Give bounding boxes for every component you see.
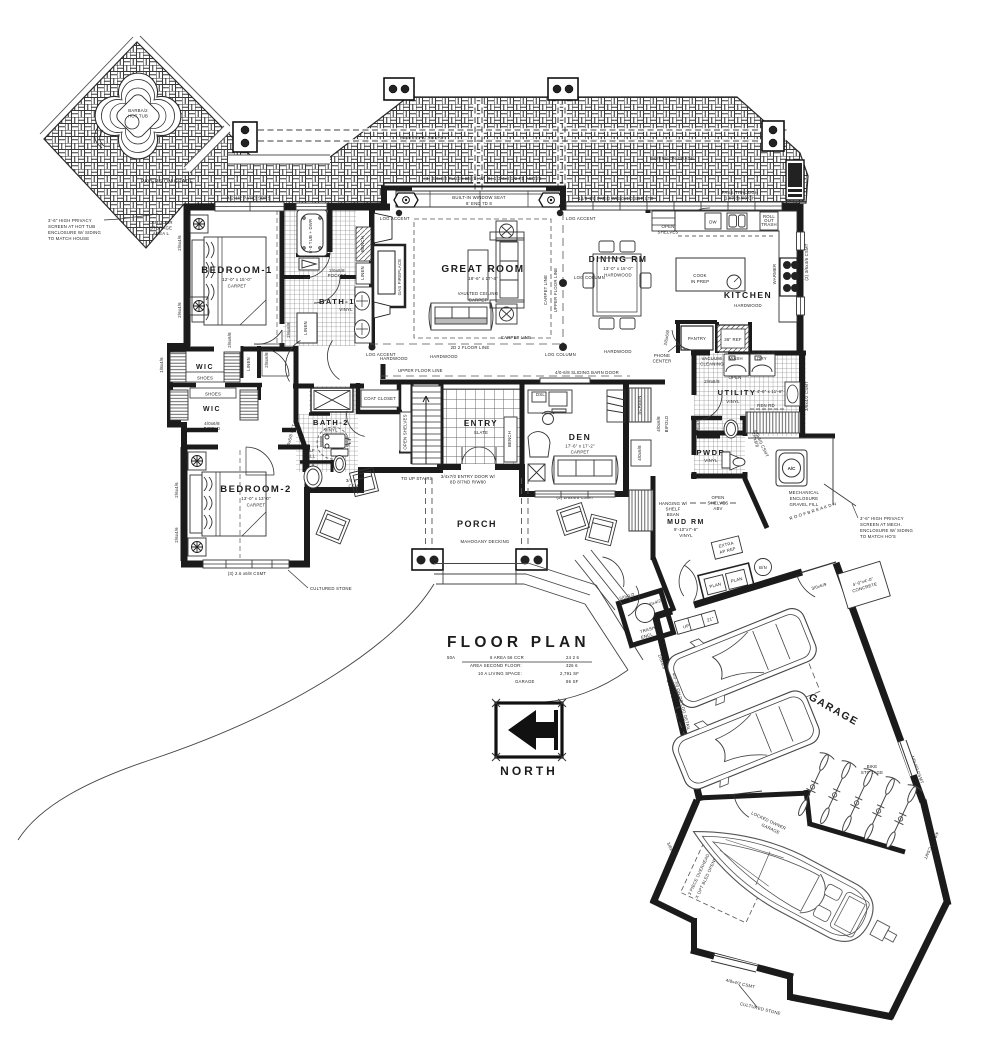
svg-text:326 6: 326 6: [566, 663, 578, 668]
svg-text:BIKE: BIKE: [867, 764, 878, 769]
svg-text:WASH: WASH: [729, 356, 743, 361]
svg-text:LOG COLUMN: LOG COLUMN: [545, 352, 576, 357]
svg-text:ENTRY: ENTRY: [464, 419, 498, 428]
svg-text:SHOES: SHOES: [197, 376, 213, 381]
svg-text:36" REF: 36" REF: [724, 337, 742, 342]
svg-text:LOG ACCENT: LOG ACCENT: [380, 216, 410, 221]
svg-text:TO UP STAIRS: TO UP STAIRS: [401, 476, 433, 481]
svg-text:4/0x6/8: 4/0x6/8: [656, 416, 661, 432]
svg-text:4'-6" x 11'-6": 4'-6" x 11'-6": [757, 389, 784, 394]
svg-text:VINYL: VINYL: [704, 458, 718, 463]
svg-text:24 2 6: 24 2 6: [566, 655, 580, 660]
svg-text:SHELF: SHELF: [666, 507, 681, 512]
svg-text:WALL: WALL: [303, 454, 316, 459]
svg-text:ENCLOSURE W/ SIDING: ENCLOSURE W/ SIDING: [48, 230, 101, 235]
svg-text:10 A LIVING SPACE:: 10 A LIVING SPACE:: [478, 671, 522, 676]
svg-text:CARPET: CARPET: [228, 284, 247, 289]
svg-text:2/8x6/8: 2/8x6/8: [704, 379, 720, 384]
svg-text:TO MATCH HO'S: TO MATCH HO'S: [860, 534, 896, 539]
svg-text:2/6x6/8: 2/6x6/8: [227, 332, 232, 348]
svg-text:BATH-2: BATH-2: [313, 418, 349, 427]
svg-text:2D 2 FLOOR LINE: 2D 2 FLOOR LINE: [451, 345, 490, 350]
svg-text:LINEN: LINEN: [303, 321, 308, 335]
svg-text:PASS THROUGH: PASS THROUGH: [722, 190, 758, 195]
svg-text:LINEN: LINEN: [246, 357, 251, 371]
svg-text:VINYL: VINYL: [339, 307, 353, 312]
svg-text:LOG ACCENT: LOG ACCENT: [366, 352, 396, 357]
svg-text:18'-6" x 17'-4": 18'-6" x 17'-4": [468, 276, 498, 281]
svg-text:BUILT-IN WINDOW SEAT: BUILT-IN WINDOW SEAT: [452, 195, 506, 200]
svg-text:13'-0" x 13'-0": 13'-0" x 13'-0": [241, 496, 271, 501]
svg-text:MAHOGANY DECKING: MAHOGANY DECKING: [461, 539, 510, 544]
svg-text:TO MATCH HOUSE: TO MATCH HOUSE: [48, 236, 89, 241]
svg-text:4/2-1/2 PATIO SDRS: 4/2-1/2 PATIO SDRS: [227, 196, 271, 201]
svg-text:VACUUM/: VACUUM/: [702, 356, 724, 361]
svg-text:POCKET: POCKET: [328, 273, 347, 278]
svg-text:86 SF: 86 SF: [566, 679, 579, 684]
svg-text:WIC: WIC: [203, 406, 221, 413]
svg-text:OPEN: OPEN: [712, 495, 725, 500]
svg-text:BENCH: BENCH: [507, 431, 512, 447]
svg-text:VINYL: VINYL: [324, 428, 338, 433]
svg-text:ENCLOSURE W/ SIDING: ENCLOSURE W/ SIDING: [860, 528, 913, 533]
svg-text:9'-10"x7'-6": 9'-10"x7'-6": [674, 527, 698, 532]
svg-text:DRY: DRY: [757, 356, 767, 361]
svg-text:SCREEN AT HOT TUB: SCREEN AT HOT TUB: [48, 224, 95, 229]
svg-text:ABV: ABV: [713, 506, 722, 511]
svg-text:2/8x6/8: 2/8x6/8: [696, 418, 701, 434]
svg-text:13/7.8x4/0 CH: 13/7.8x4/0 CH: [725, 196, 755, 201]
svg-text:OUTDOOR: OUTDOOR: [149, 220, 172, 225]
svg-text:2/6x4/6: 2/6x4/6: [174, 527, 179, 543]
svg-text:1/8x4/6: 1/8x4/6: [159, 357, 164, 373]
svg-text:2/8x6/8: 2/8x6/8: [264, 352, 269, 368]
svg-text:IN PREP: IN PREP: [691, 279, 710, 284]
svg-text:DW: DW: [709, 220, 717, 225]
svg-text:UTILITY: UTILITY: [718, 388, 757, 397]
svg-text:(2) 3/6x4/6 CSMT: (2) 3/6x4/6 CSMT: [804, 243, 809, 280]
svg-text:50A: 50A: [447, 655, 455, 660]
svg-text:17'-6" x 17'-2": 17'-6" x 17'-2": [565, 444, 595, 449]
svg-text:13'-0" x 15'-0": 13'-0" x 15'-0": [603, 266, 633, 271]
svg-text:BATH-1: BATH-1: [319, 297, 355, 306]
svg-text:MUD RM: MUD RM: [667, 519, 705, 526]
svg-text:STORAGE: STORAGE: [150, 226, 172, 231]
svg-text:PHONE: PHONE: [654, 353, 670, 358]
svg-text:ENCLOSURE: ENCLOSURE: [790, 496, 819, 501]
svg-text:CARPET: CARPET: [247, 503, 266, 508]
svg-text:FLOOR PLAN: FLOOR PLAN: [447, 634, 590, 651]
svg-text:14/0-1/0 PATIO W/3/0x1/0 SDR L: 14/0-1/0 PATIO W/3/0x1/0 SDR LTD: [578, 196, 653, 201]
svg-text:DEN: DEN: [569, 432, 591, 442]
svg-text:4/0-6/8 SLIDING BARN DOOR: 4/0-6/8 SLIDING BARN DOOR: [555, 370, 619, 375]
svg-text:NORTH: NORTH: [500, 764, 558, 778]
svg-text:HARDWOOD: HARDWOOD: [604, 349, 632, 354]
svg-text:SLATE: SLATE: [474, 430, 488, 435]
svg-text:2/6x4/6: 2/6x4/6: [174, 482, 179, 498]
svg-text:BENCH: BENCH: [360, 236, 365, 252]
svg-text:LINEN: LINEN: [360, 266, 365, 280]
svg-text:8D 8/7ND R/W80: 8D 8/7ND R/W80: [450, 480, 486, 485]
svg-text:HARDWOOD: HARDWOOD: [430, 354, 458, 359]
svg-text:REN RD: REN RD: [757, 403, 775, 408]
svg-text:8' END 7D 8: 8' END 7D 8: [466, 201, 492, 206]
svg-text:HANGING W/: HANGING W/: [659, 501, 688, 506]
svg-text:GARAGE: GARAGE: [515, 679, 535, 684]
svg-text:HARDWOOD: HARDWOOD: [734, 303, 762, 308]
svg-text:GRAVEL FILL: GRAVEL FILL: [790, 502, 819, 507]
svg-text:DINING RM: DINING RM: [589, 254, 648, 264]
svg-text:UPPER FLOOR LINE: UPPER FLOOR LINE: [553, 268, 558, 313]
svg-text:CLEANING: CLEANING: [700, 362, 724, 367]
svg-text:COOK: COOK: [693, 273, 706, 278]
svg-text:3/4x7/0 ENTRY DOOR W/: 3/4x7/0 ENTRY DOOR W/: [441, 474, 496, 479]
svg-text:HALF: HALF: [303, 448, 315, 453]
svg-text:HOT TUB: HOT TUB: [128, 114, 148, 119]
svg-text:PAVERS ON GRADE: PAVERS ON GRADE: [650, 156, 694, 161]
svg-text:BIFOLD: BIFOLD: [204, 426, 221, 431]
svg-text:6 AREA 56 CCR: 6 AREA 56 CCR: [490, 655, 524, 660]
svg-text:SCREEN: SCREEN: [637, 395, 642, 414]
svg-text:BSAN: BSAN: [667, 512, 680, 517]
svg-text:CARPET LINE: CARPET LINE: [543, 275, 548, 305]
svg-text:2/6x4/6: 2/6x4/6: [177, 235, 182, 251]
svg-text:CARPET: CARPET: [571, 450, 590, 455]
svg-text:BEDROOM-1: BEDROOM-1: [201, 265, 273, 276]
svg-text:AREA L: AREA L: [153, 231, 170, 236]
svg-text:COAT CLOSET: COAT CLOSET: [364, 396, 396, 401]
svg-text:LOG ACCENT: LOG ACCENT: [566, 216, 596, 221]
svg-text:WIC: WIC: [196, 364, 214, 371]
svg-text:UPPER FLOOR LINE: UPPER FLOOR LINE: [398, 368, 443, 373]
svg-text:BEDROOM-2: BEDROOM-2: [220, 484, 292, 495]
svg-text:(3) 2.6 x6/8 CSMT: (3) 2.6 x6/8 CSMT: [228, 571, 267, 576]
svg-text:HARDWOOD: HARDWOOD: [604, 273, 632, 278]
svg-text:MECHANICAL: MECHANICAL: [789, 490, 820, 495]
svg-text:LOG COLUMN: LOG COLUMN: [574, 275, 605, 280]
svg-text:CENTER: CENTER: [653, 359, 672, 364]
svg-text:2,791 SF: 2,791 SF: [560, 671, 579, 676]
svg-text:(3) 3/4x6/0 FLUSH BM(S) W/ (5): (3) 3/4x6/0 FLUSH BM(S) W/ (5) 1 3/4x9 1…: [424, 176, 541, 181]
svg-text:3'-6" HIGH PRIVACY: 3'-6" HIGH PRIVACY: [860, 516, 904, 521]
svg-text:CARPET LINE: CARPET LINE: [501, 335, 531, 340]
svg-text:SHELVES: SHELVES: [708, 501, 729, 506]
svg-text:BIFOLD: BIFOLD: [664, 416, 669, 433]
svg-text:PAVERS ON GRADE: PAVERS ON GRADE: [141, 179, 193, 185]
svg-text:VINYL: VINYL: [679, 533, 693, 538]
svg-text:B/N: B/N: [759, 565, 767, 570]
svg-text:CULTURED STONE: CULTURED STONE: [310, 586, 352, 591]
svg-text:PANTRY: PANTRY: [688, 336, 706, 341]
svg-text:OPEN: OPEN: [729, 375, 742, 380]
svg-text:4/0x6/8: 4/0x6/8: [637, 445, 642, 461]
svg-text:3'-6" HIGH PRIVACY: 3'-6" HIGH PRIVACY: [48, 218, 92, 223]
svg-text:PORCH: PORCH: [457, 519, 497, 529]
svg-text:GREAT ROOM: GREAT ROOM: [441, 264, 524, 275]
svg-text:VINYL: VINYL: [726, 399, 740, 404]
svg-text:6'-0 TUB + DWR: 6'-0 TUB + DWR: [308, 219, 313, 254]
svg-text:SHOES: SHOES: [205, 392, 221, 397]
svg-text:2/6x6/8: 2/6x6/8: [286, 322, 291, 338]
svg-text:3/6x4/2 CSMT: 3/6x4/2 CSMT: [804, 381, 809, 411]
svg-text:SCREEN AT MECH.: SCREEN AT MECH.: [860, 522, 902, 527]
svg-text:AREA SECOND FLOOR:: AREA SECOND FLOOR:: [470, 663, 522, 668]
svg-text:GAS FIREPLACE: GAS FIREPLACE: [397, 259, 402, 296]
svg-text:12'-0" x 15'-0": 12'-0" x 15'-0": [222, 277, 252, 282]
svg-text:BARBA/2: BARBA/2: [128, 108, 148, 113]
svg-text:PWDR: PWDR: [697, 448, 726, 457]
svg-text:OPEN SHELVES: OPEN SHELVES: [403, 414, 408, 449]
svg-text:2/6x4/6: 2/6x4/6: [177, 302, 182, 318]
svg-text:WARMER: WARMER: [772, 264, 777, 285]
svg-text:DSL: DSL: [536, 392, 545, 397]
svg-text:VAULTED CEILING: VAULTED CEILING: [458, 291, 499, 296]
svg-text:TRASH: TRASH: [761, 222, 777, 227]
svg-text:A/C: A/C: [788, 466, 797, 471]
